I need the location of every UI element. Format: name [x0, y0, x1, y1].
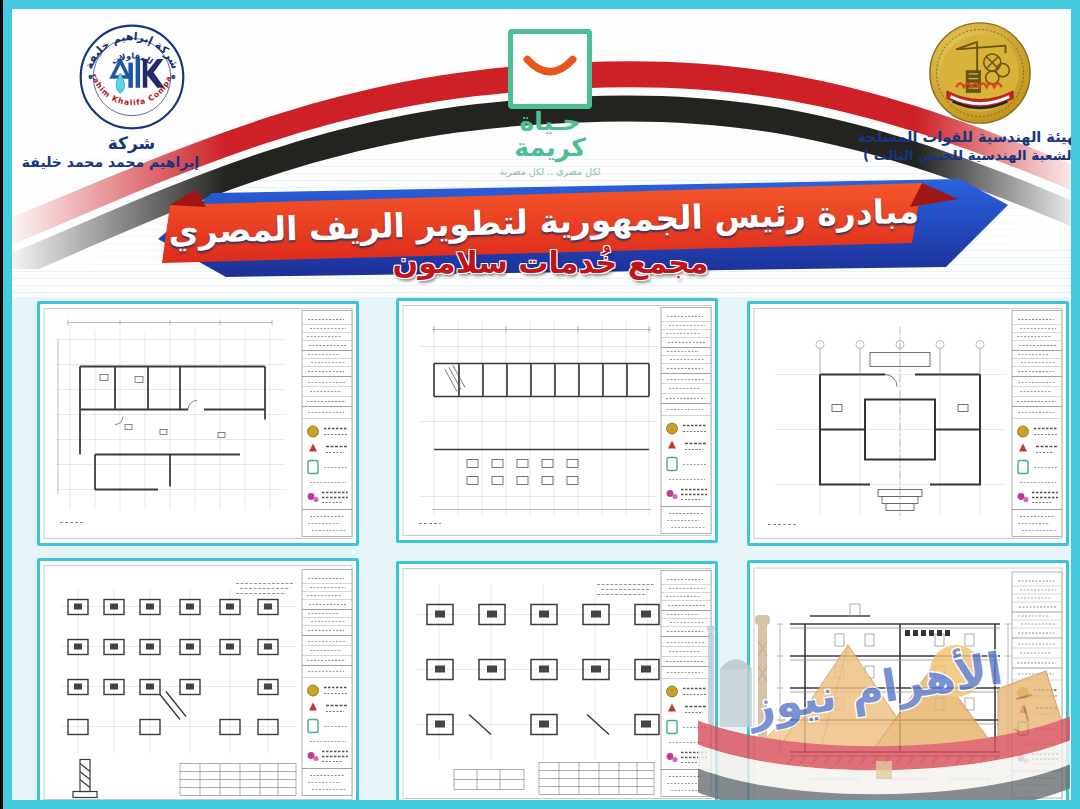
drawing-sheet-5 [396, 561, 718, 806]
banner-fold-left [170, 189, 206, 207]
project-subtitle: مجمع خُدمات سلامون [12, 245, 1080, 280]
building-section [750, 563, 1066, 807]
floor-plan-2 [399, 301, 715, 540]
engineering-authority-line2: ( الشعبة الهندسية للجيش الثالث ) [872, 147, 1080, 163]
engineering-authority-block: الهيئة الهندسية للقوات المسلحة ( الشعبة … [872, 21, 1080, 163]
floor-plan-3 [750, 304, 1066, 543]
decent-life-smile-icon [508, 29, 592, 109]
drawing-sheet-6 [747, 560, 1069, 809]
company-name-line2: إبراهيم محمد محمد خليفة [64, 154, 199, 170]
ibrahim-khalifa-logo: شركة إبراهيم خليفة للمقاولات Ibrahim Kha… [78, 23, 186, 131]
engineering-authority-line1: الهيئة الهندسية للقوات المسلحة [872, 129, 1080, 145]
engineering-authority-emblem-icon [928, 21, 1032, 125]
foundation-plan-2 [399, 564, 715, 803]
drawing-sheet-4 [37, 558, 359, 807]
contractor-logo-block: شركة إبراهيم خليفة للمقاولات Ibrahim Kha… [64, 23, 199, 170]
drawing-sheet-1 [37, 301, 359, 546]
decent-life-word2: كريمة [480, 135, 620, 161]
floor-plan-1 [40, 304, 356, 543]
drawing-sheet-3 [747, 301, 1069, 546]
decent-life-word1: حـياة [480, 109, 620, 135]
decent-life-logo-block: حـياة كريمة لكل مصري .. لكل مصرية [480, 29, 620, 177]
poster: شركة إبراهيم خليفة للمقاولات Ibrahim Kha… [3, 0, 1080, 809]
company-name-line1: شركة [64, 133, 199, 153]
foundation-plan-1 [40, 561, 356, 804]
drawing-sheet-2 [396, 298, 718, 543]
